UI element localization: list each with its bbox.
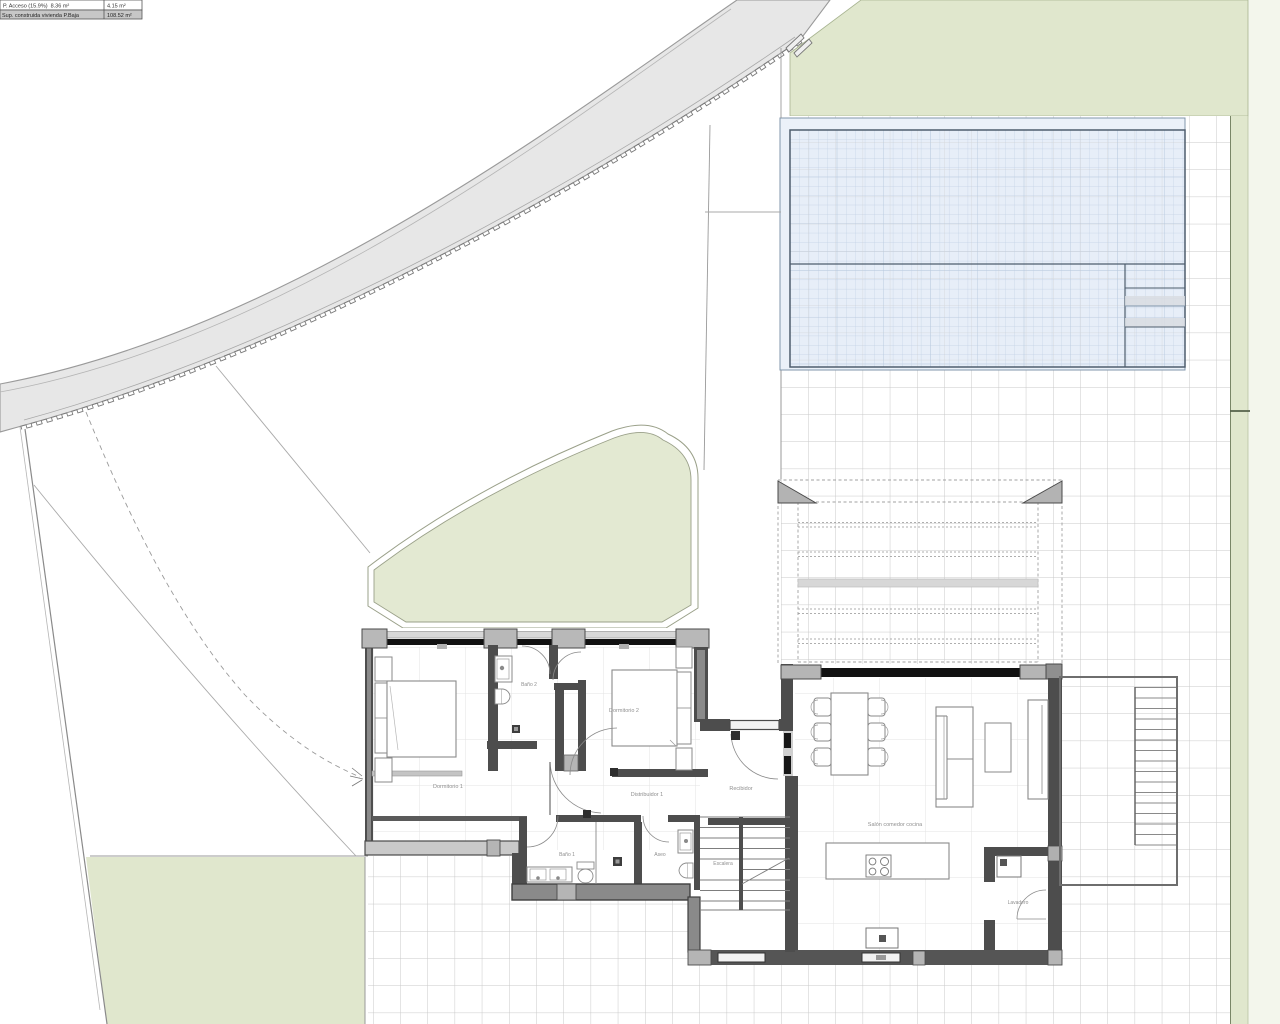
svg-text:Recibidor: Recibidor bbox=[729, 786, 752, 792]
svg-text:P. Acceso (15.9%) 8.36 m²: P. Acceso (15.9%) 8.36 m² bbox=[3, 4, 69, 10]
svg-text:Lavadero: Lavadero bbox=[1008, 900, 1029, 906]
svg-text:Escalera: Escalera bbox=[713, 861, 733, 867]
svg-text:4.15 m²: 4.15 m² bbox=[107, 4, 126, 10]
svg-text:108.52 m²: 108.52 m² bbox=[107, 13, 132, 19]
svg-text:Distribuidor 1: Distribuidor 1 bbox=[631, 792, 663, 798]
svg-text:Baño 1: Baño 1 bbox=[559, 852, 575, 858]
svg-text:Dormitorio 1: Dormitorio 1 bbox=[433, 784, 463, 790]
svg-text:Sup. construida vivienda P.Baj: Sup. construida vivienda P.Baja bbox=[2, 13, 80, 19]
svg-text:Dormitorio 2: Dormitorio 2 bbox=[609, 708, 639, 714]
svg-text:Baño 2: Baño 2 bbox=[521, 682, 537, 688]
svg-text:Aseo: Aseo bbox=[654, 852, 666, 858]
svg-text:Salón comedor cocina: Salón comedor cocina bbox=[868, 822, 923, 828]
